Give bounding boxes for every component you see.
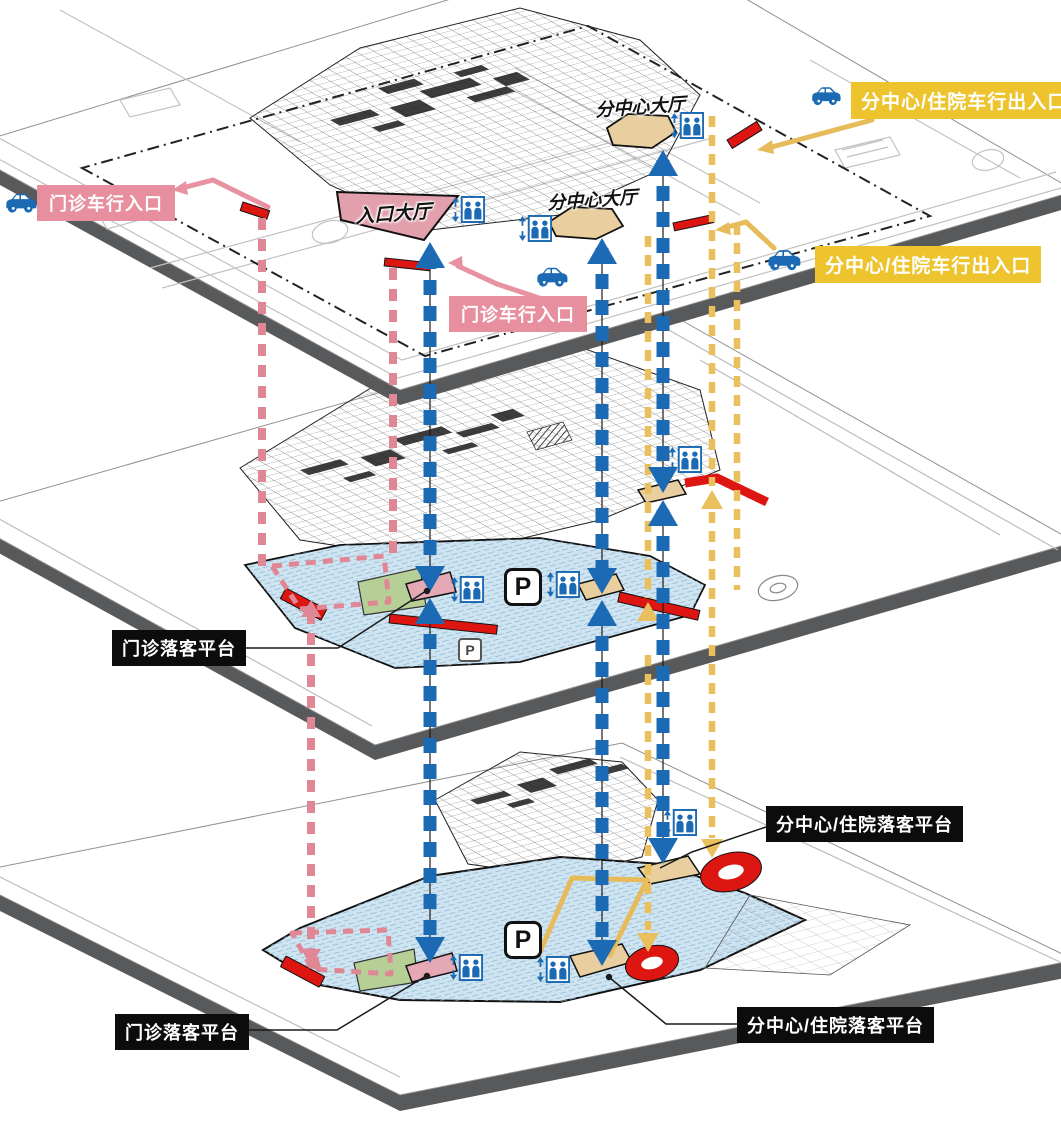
subcenter-inpatient-exit-label: 分中心/住院车行出入口 — [851, 82, 1061, 119]
middle-floor-plane — [0, 311, 1061, 760]
outpatient-dropoff-platform-label: 门诊落客平台 — [115, 1014, 249, 1050]
outpatient-dropoff-platform-label: 门诊落客平台 — [112, 630, 246, 666]
parking-symbol-small: P — [458, 638, 482, 662]
outpatient-vehicle-entrance-label: 门诊车行入口 — [37, 185, 175, 221]
parking-symbol: P — [504, 921, 542, 959]
subcenter-inpatient-exit-label: 分中心/住院车行出入口 — [815, 246, 1041, 283]
entrance-hall-text: 入口大厅 — [354, 196, 436, 229]
hospital-circulation-diagram: 门诊车行入口 门诊车行入口 分中心/住院车行出入口 分中心/住院车行出入口 入口… — [0, 0, 1061, 1129]
outpatient-vehicle-entrance-label: 门诊车行入口 — [449, 296, 587, 332]
subcenter-dropoff-platform-label: 分中心/住院落客平台 — [766, 806, 963, 842]
subcenter-dropoff-platform-label: 分中心/住院落客平台 — [737, 1007, 934, 1043]
parking-symbol: P — [504, 568, 542, 606]
diagram-canvas — [0, 0, 1061, 1129]
